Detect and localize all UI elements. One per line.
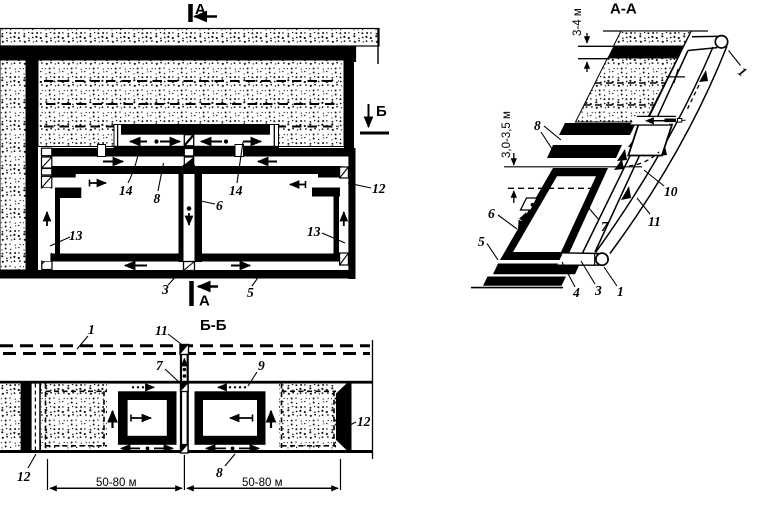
svg-text:3,0-3,5 м: 3,0-3,5 м — [501, 111, 513, 158]
svg-text:4: 4 — [572, 285, 580, 300]
svg-text:Б: Б — [376, 103, 387, 120]
svg-text:10: 10 — [664, 184, 678, 199]
svg-text:11: 11 — [155, 323, 168, 338]
svg-text:6: 6 — [488, 206, 495, 221]
svg-text:1: 1 — [88, 322, 95, 337]
svg-text:14: 14 — [229, 183, 243, 198]
svg-text:9: 9 — [258, 358, 265, 373]
svg-text:50-80 м: 50-80 м — [242, 477, 283, 489]
svg-text:11: 11 — [648, 214, 661, 229]
svg-text:3: 3 — [161, 282, 169, 297]
svg-text:5: 5 — [478, 234, 485, 249]
svg-text:8: 8 — [216, 465, 223, 480]
svg-text:8: 8 — [154, 191, 161, 206]
svg-text:12: 12 — [372, 181, 386, 196]
svg-text:3-4 м: 3-4 м — [572, 8, 584, 36]
svg-text:12: 12 — [17, 469, 31, 484]
svg-text:А-А: А-А — [610, 1, 637, 18]
svg-text:Б-Б: Б-Б — [200, 317, 227, 334]
svg-text:50-80 м: 50-80 м — [96, 477, 137, 489]
svg-text:А: А — [195, 1, 206, 18]
svg-text:5: 5 — [247, 285, 254, 300]
svg-text:14: 14 — [119, 183, 133, 198]
svg-text:12: 12 — [357, 414, 371, 429]
svg-text:13: 13 — [69, 228, 83, 243]
svg-text:1: 1 — [617, 284, 624, 299]
svg-text:3: 3 — [594, 283, 602, 298]
svg-text:А: А — [199, 293, 210, 310]
svg-text:8: 8 — [534, 118, 541, 133]
svg-text:6: 6 — [216, 198, 223, 213]
svg-text:13: 13 — [307, 224, 321, 239]
